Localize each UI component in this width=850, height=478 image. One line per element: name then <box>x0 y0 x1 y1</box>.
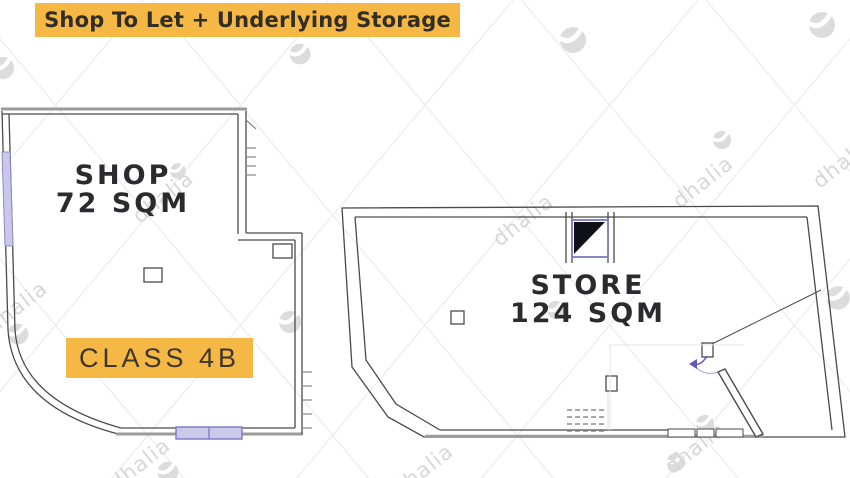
shop-area: 72 SQM <box>23 190 223 218</box>
class-badge: CLASS 4B <box>66 338 253 378</box>
store-column <box>606 376 617 391</box>
store-window-segment <box>697 429 714 437</box>
store-window-segment <box>716 429 743 437</box>
shop-column <box>144 268 162 282</box>
store-window-segment <box>668 429 695 437</box>
shop-wall-notch <box>273 244 292 258</box>
lift-shaft <box>566 212 614 263</box>
door-swing-arrowhead <box>689 359 697 369</box>
shop-floorplan <box>1 109 312 439</box>
shop-window <box>2 152 13 246</box>
floorplan-drawing <box>0 0 850 478</box>
stairs-dashes <box>567 410 607 431</box>
store-right-wall-inner <box>807 217 832 430</box>
floorplan-page: dhalia dhalia dhalia dhalia dhalia dhali… <box>0 0 850 478</box>
store-column <box>451 311 464 324</box>
store-name: STORE <box>530 270 645 301</box>
stair-ticks-lower <box>303 372 312 428</box>
store-faint-outline <box>610 345 744 430</box>
store-left-wall-inner <box>355 217 440 430</box>
store-area: 124 SQM <box>488 300 688 328</box>
stair-ticks-upper <box>246 120 256 175</box>
store-label: STORE 124 SQM <box>488 272 688 328</box>
store-diagonal-wall <box>718 369 763 437</box>
door-swing-arc <box>694 364 719 373</box>
title-banner: Shop To Let + Underlying Storage <box>35 3 460 37</box>
shop-label: SHOP 72 SQM <box>23 162 223 218</box>
shop-name: SHOP <box>75 160 172 191</box>
store-partition-line <box>712 290 821 344</box>
